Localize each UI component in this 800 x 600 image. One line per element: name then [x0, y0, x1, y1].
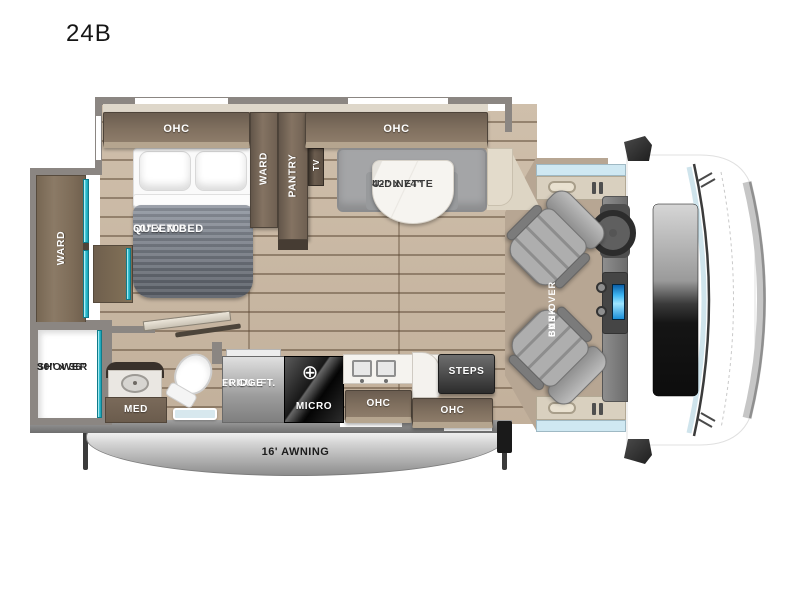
overhead-cabinet-label: OHC [412, 405, 493, 416]
driver-mirror-icon [624, 136, 652, 161]
entry-steps-label: STEPS [438, 366, 495, 377]
door-hinge [599, 182, 603, 194]
hood [653, 204, 698, 396]
pantry-label: PANTRY [288, 136, 299, 216]
wardrobe-slideout-label: WARD [55, 208, 67, 288]
wall-inner-face [103, 104, 488, 112]
sink-drain [384, 379, 388, 383]
cup-holder [596, 306, 607, 317]
floorplan-title: 24B [66, 20, 112, 48]
door-hinge [592, 182, 596, 194]
toilet-pedestal [173, 408, 217, 420]
shower [38, 330, 102, 418]
slideout-wall-top [30, 168, 102, 175]
kitchen-sink-basin [352, 360, 372, 377]
passenger-mirror-icon [624, 439, 652, 464]
overhead-cabinet-label: OHC [345, 398, 412, 409]
wardrobe-label: WARD [259, 129, 270, 209]
cab-over-bunk-label: CAB-OVER BUNK [547, 263, 573, 337]
door-hinge [599, 403, 603, 415]
pillow [139, 151, 191, 191]
cab-front-graphic [600, 130, 790, 470]
counter-end [412, 352, 440, 398]
pantry-base [278, 240, 308, 250]
floorplan-24b: 24B 16' AWNING [0, 0, 800, 600]
dinette-table [372, 160, 454, 224]
faucet [133, 381, 137, 385]
cup-holder [596, 282, 607, 293]
wall-corner [497, 421, 512, 453]
med-cabinet-label: MED [105, 404, 167, 415]
wardrobe-mirror-accent [83, 179, 89, 243]
window [96, 116, 101, 160]
overhead-cabinet-label: OHC [103, 123, 250, 135]
wardrobe-mirror-accent [83, 250, 89, 318]
bedside-accent [126, 248, 131, 300]
pillow [195, 151, 247, 191]
console-screen [612, 284, 625, 320]
microwave-label: MICRO [285, 401, 343, 412]
dinette-end-cabinet [487, 148, 513, 206]
tv-label: TV [311, 145, 321, 185]
overhead-cabinet-label: OHC [305, 123, 488, 135]
door-window [536, 164, 626, 176]
shower-door-accent [97, 330, 102, 418]
queen-bed [133, 205, 253, 298]
burner-icon: ⊕ [298, 361, 322, 385]
sink-drain [360, 379, 364, 383]
awning-label: 16' AWNING [86, 446, 505, 458]
wardrobe-divider [83, 243, 89, 250]
wall-stub [505, 97, 512, 132]
kitchen-sink-basin [376, 360, 396, 377]
door-hinge [592, 403, 596, 415]
door-window [536, 420, 626, 432]
